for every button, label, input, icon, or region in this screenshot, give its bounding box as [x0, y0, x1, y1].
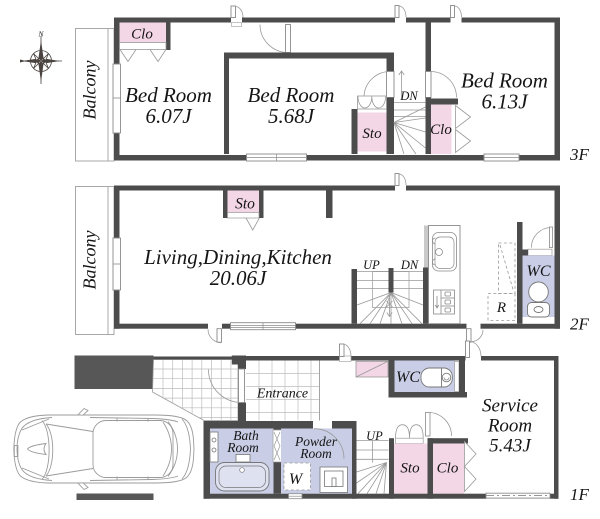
svg-text:Room: Room — [226, 440, 259, 455]
svg-text:Entrance: Entrance — [256, 387, 308, 402]
svg-text:Balcony: Balcony — [80, 231, 100, 290]
svg-text:WC: WC — [527, 263, 551, 280]
svg-text:WC: WC — [396, 369, 420, 386]
svg-text:DN: DN — [400, 258, 419, 272]
svg-text:6.07J: 6.07J — [145, 104, 193, 128]
svg-text:20.06J: 20.06J — [210, 266, 268, 290]
svg-text:Sto: Sto — [235, 196, 255, 213]
svg-text:Sto: Sto — [362, 126, 382, 142]
svg-text:UP: UP — [363, 258, 380, 272]
svg-text:UP: UP — [366, 429, 383, 443]
svg-text:R: R — [496, 300, 506, 316]
svg-text:3F: 3F — [569, 145, 590, 164]
svg-text:5.68J: 5.68J — [268, 104, 316, 128]
svg-text:DN: DN — [399, 89, 418, 103]
svg-text:Room: Room — [487, 416, 532, 437]
svg-text:Clo: Clo — [131, 27, 153, 43]
svg-text:5.43J: 5.43J — [489, 436, 532, 457]
svg-text:Clo: Clo — [437, 461, 459, 477]
svg-text:Room: Room — [299, 446, 332, 461]
svg-text:Balcony: Balcony — [80, 61, 100, 120]
svg-text:6.13J: 6.13J — [481, 90, 529, 114]
svg-text:W: W — [289, 471, 304, 488]
svg-text:N: N — [37, 30, 44, 39]
svg-text:2F: 2F — [570, 315, 590, 334]
svg-text:Clo: Clo — [430, 122, 452, 138]
svg-text:Service: Service — [482, 396, 538, 417]
svg-text:1F: 1F — [570, 485, 590, 504]
svg-text:Sto: Sto — [400, 461, 420, 477]
